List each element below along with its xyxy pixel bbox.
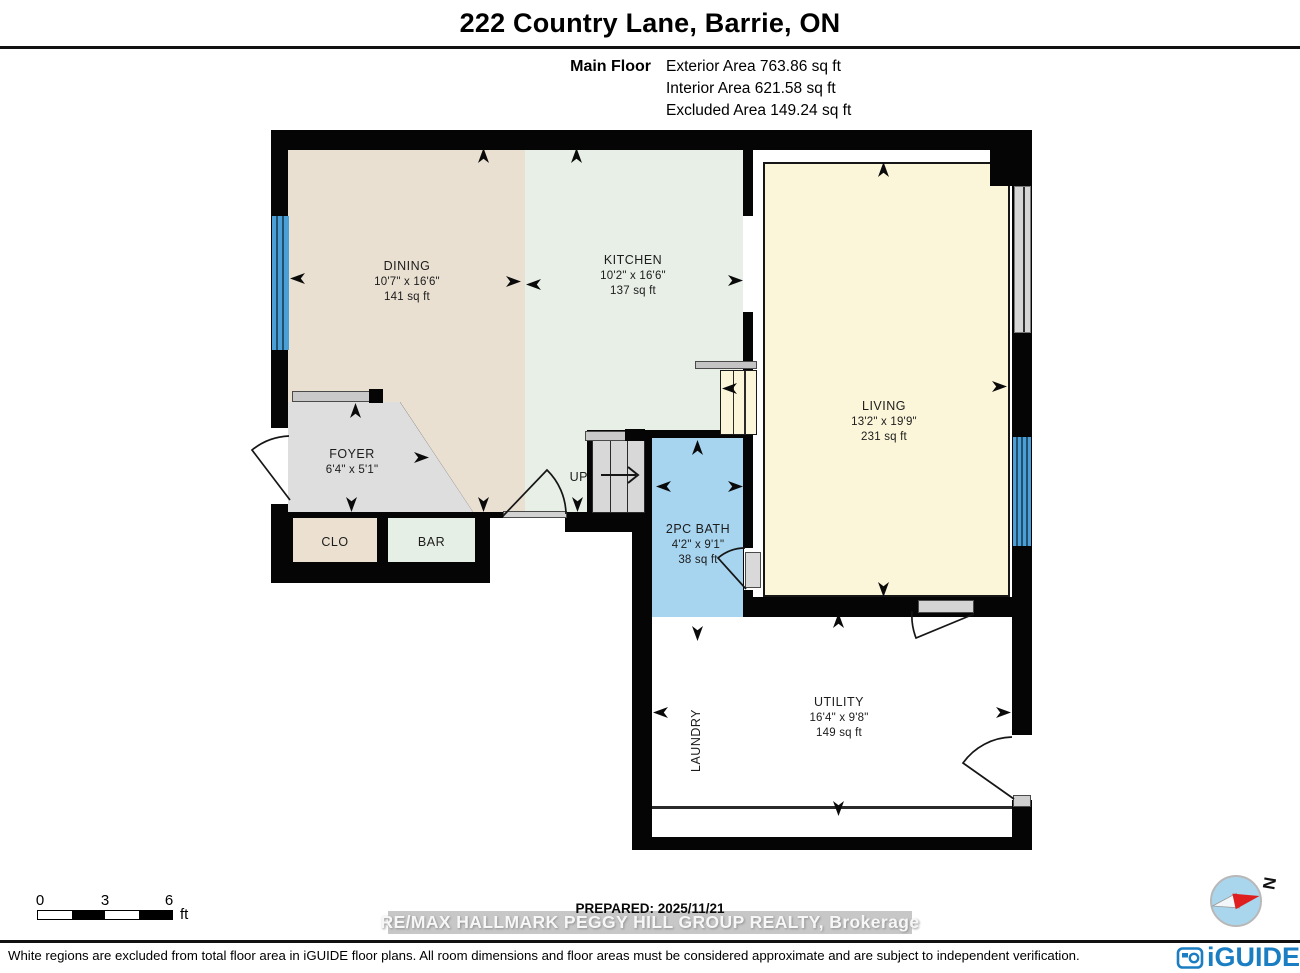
window xyxy=(1013,437,1031,546)
camera-icon xyxy=(1176,945,1204,970)
prepared-date: PREPARED: 2025/11/21 xyxy=(450,901,850,916)
window-pane-line xyxy=(1016,437,1018,546)
staircase xyxy=(592,433,645,513)
header-divider xyxy=(0,46,1300,49)
interior-area: Interior Area 621.58 sq ft xyxy=(666,80,1026,98)
room-label-bar: BAR xyxy=(389,534,474,551)
excluded-area: Excluded Area 149.24 sq ft xyxy=(666,102,1026,120)
exterior-notch xyxy=(565,532,632,583)
window-pane-line xyxy=(1021,437,1023,546)
footer-divider xyxy=(0,940,1300,943)
room-label-bath: 2PC BATH 4'2" x 9'1" 38 sq ft xyxy=(628,521,768,569)
scale-segment xyxy=(38,911,72,919)
wall-segment xyxy=(369,389,383,403)
closet-shelf xyxy=(292,391,372,402)
room-label-dining: DINING 10'7" x 16'6" 141 sq ft xyxy=(327,258,487,306)
scale-tick: 0 xyxy=(25,892,55,909)
scale-bar-rule xyxy=(37,910,173,920)
utility-threshold xyxy=(652,806,1012,809)
page-title: 222 Country Lane, Barrie, ON xyxy=(0,8,1300,39)
room-label-laundry: LAUNDRY xyxy=(688,695,722,785)
utility-door-opening xyxy=(1012,735,1032,800)
step-line xyxy=(744,371,746,434)
room-living xyxy=(763,162,1010,597)
room-label-living: LIVING 13'2" x 19'9" 231 sq ft xyxy=(804,398,964,446)
exterior-area: Exterior Area 763.86 sq ft xyxy=(666,58,1026,76)
window xyxy=(272,216,289,350)
window-pane-line xyxy=(1026,437,1028,546)
scale-unit: ft xyxy=(180,906,188,923)
room-label-foyer: FOYER 6'4" x 5'1" xyxy=(282,446,422,478)
sliding-door-line xyxy=(1023,187,1025,332)
compass-icon: N xyxy=(1203,866,1289,936)
stair-tread xyxy=(627,434,629,512)
door-sill xyxy=(918,600,974,613)
kitchen-counter xyxy=(695,361,757,369)
floor-name: Main Floor xyxy=(455,58,651,76)
stair-tread xyxy=(610,434,612,512)
stairs-up-label: UP xyxy=(550,469,588,486)
room-label-closet: CLO xyxy=(294,534,376,551)
pass-through-opening xyxy=(743,216,757,312)
scale-segment xyxy=(72,911,106,919)
wall-segment xyxy=(625,429,645,441)
floorplan-page: 222 Country Lane, Barrie, ON Main Floor … xyxy=(0,0,1300,973)
iguide-logo-text: iGUIDE xyxy=(1207,942,1300,973)
window-pane-line xyxy=(282,216,284,350)
steps xyxy=(720,370,757,435)
iguide-logo: iGUIDE xyxy=(1176,942,1300,973)
door-sill xyxy=(503,511,567,518)
wall-corner-notch xyxy=(990,150,1032,186)
room-label-utility: UTILITY 16'4" x 9'8" 149 sq ft xyxy=(759,694,919,742)
stair-rail xyxy=(585,431,627,441)
sliding-door xyxy=(1014,186,1031,333)
scale-segment xyxy=(105,911,139,919)
room-label-kitchen: KITCHEN 10'2" x 16'6" 137 sq ft xyxy=(553,252,713,300)
exterior-notch xyxy=(490,518,565,583)
step-line xyxy=(733,371,735,434)
window-pane-line xyxy=(276,216,278,350)
door-sill xyxy=(1013,795,1031,807)
scale-segment xyxy=(139,911,173,919)
compass-north-label: N xyxy=(1259,875,1280,890)
disclaimer-text: White regions are excluded from total fl… xyxy=(8,948,1108,963)
scale-tick: 3 xyxy=(90,892,120,909)
